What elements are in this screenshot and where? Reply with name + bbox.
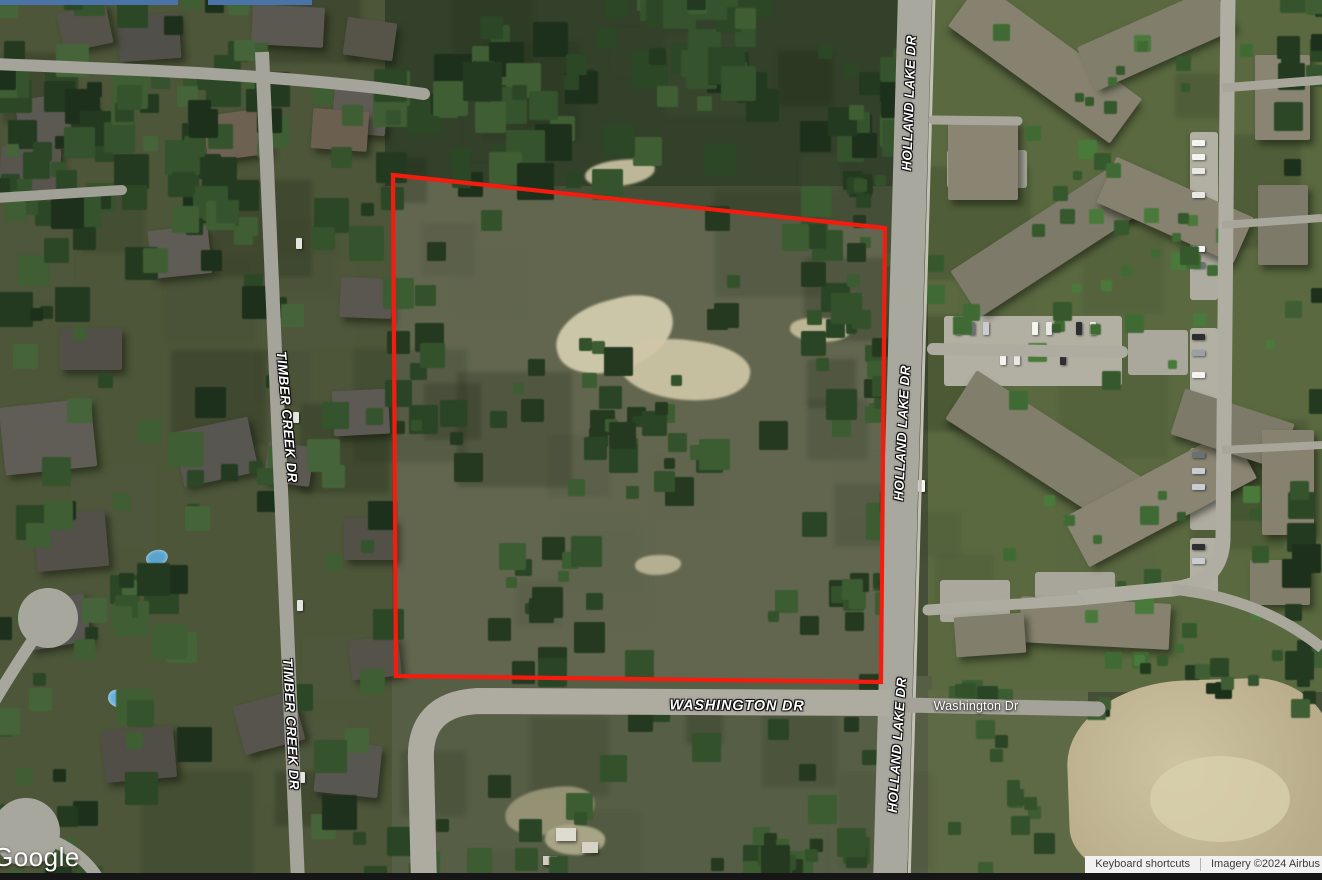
boundary-polygon <box>393 175 885 682</box>
imagery-credit: Imagery ©2024 Airbus <box>1201 856 1322 873</box>
street-label-washington: WASHINGTON DR <box>669 698 804 715</box>
blue-roof-strip <box>208 0 312 5</box>
keyboard-shortcuts-button[interactable]: Keyboard shortcuts <box>1085 856 1200 873</box>
satellite-map[interactable]: HOLLAND LAKE DR HOLLAND LAKE DR HOLLAND … <box>0 0 1322 880</box>
google-logo[interactable]: Google <box>0 842 80 873</box>
street-label-washington-small: Washington Dr <box>934 699 1019 713</box>
window-bottom-edge <box>0 873 1322 880</box>
attribution-bar: Keyboard shortcuts Imagery ©2024 Airbus <box>1085 856 1322 873</box>
blue-roof-strip <box>0 0 178 5</box>
property-boundary <box>0 0 1322 880</box>
